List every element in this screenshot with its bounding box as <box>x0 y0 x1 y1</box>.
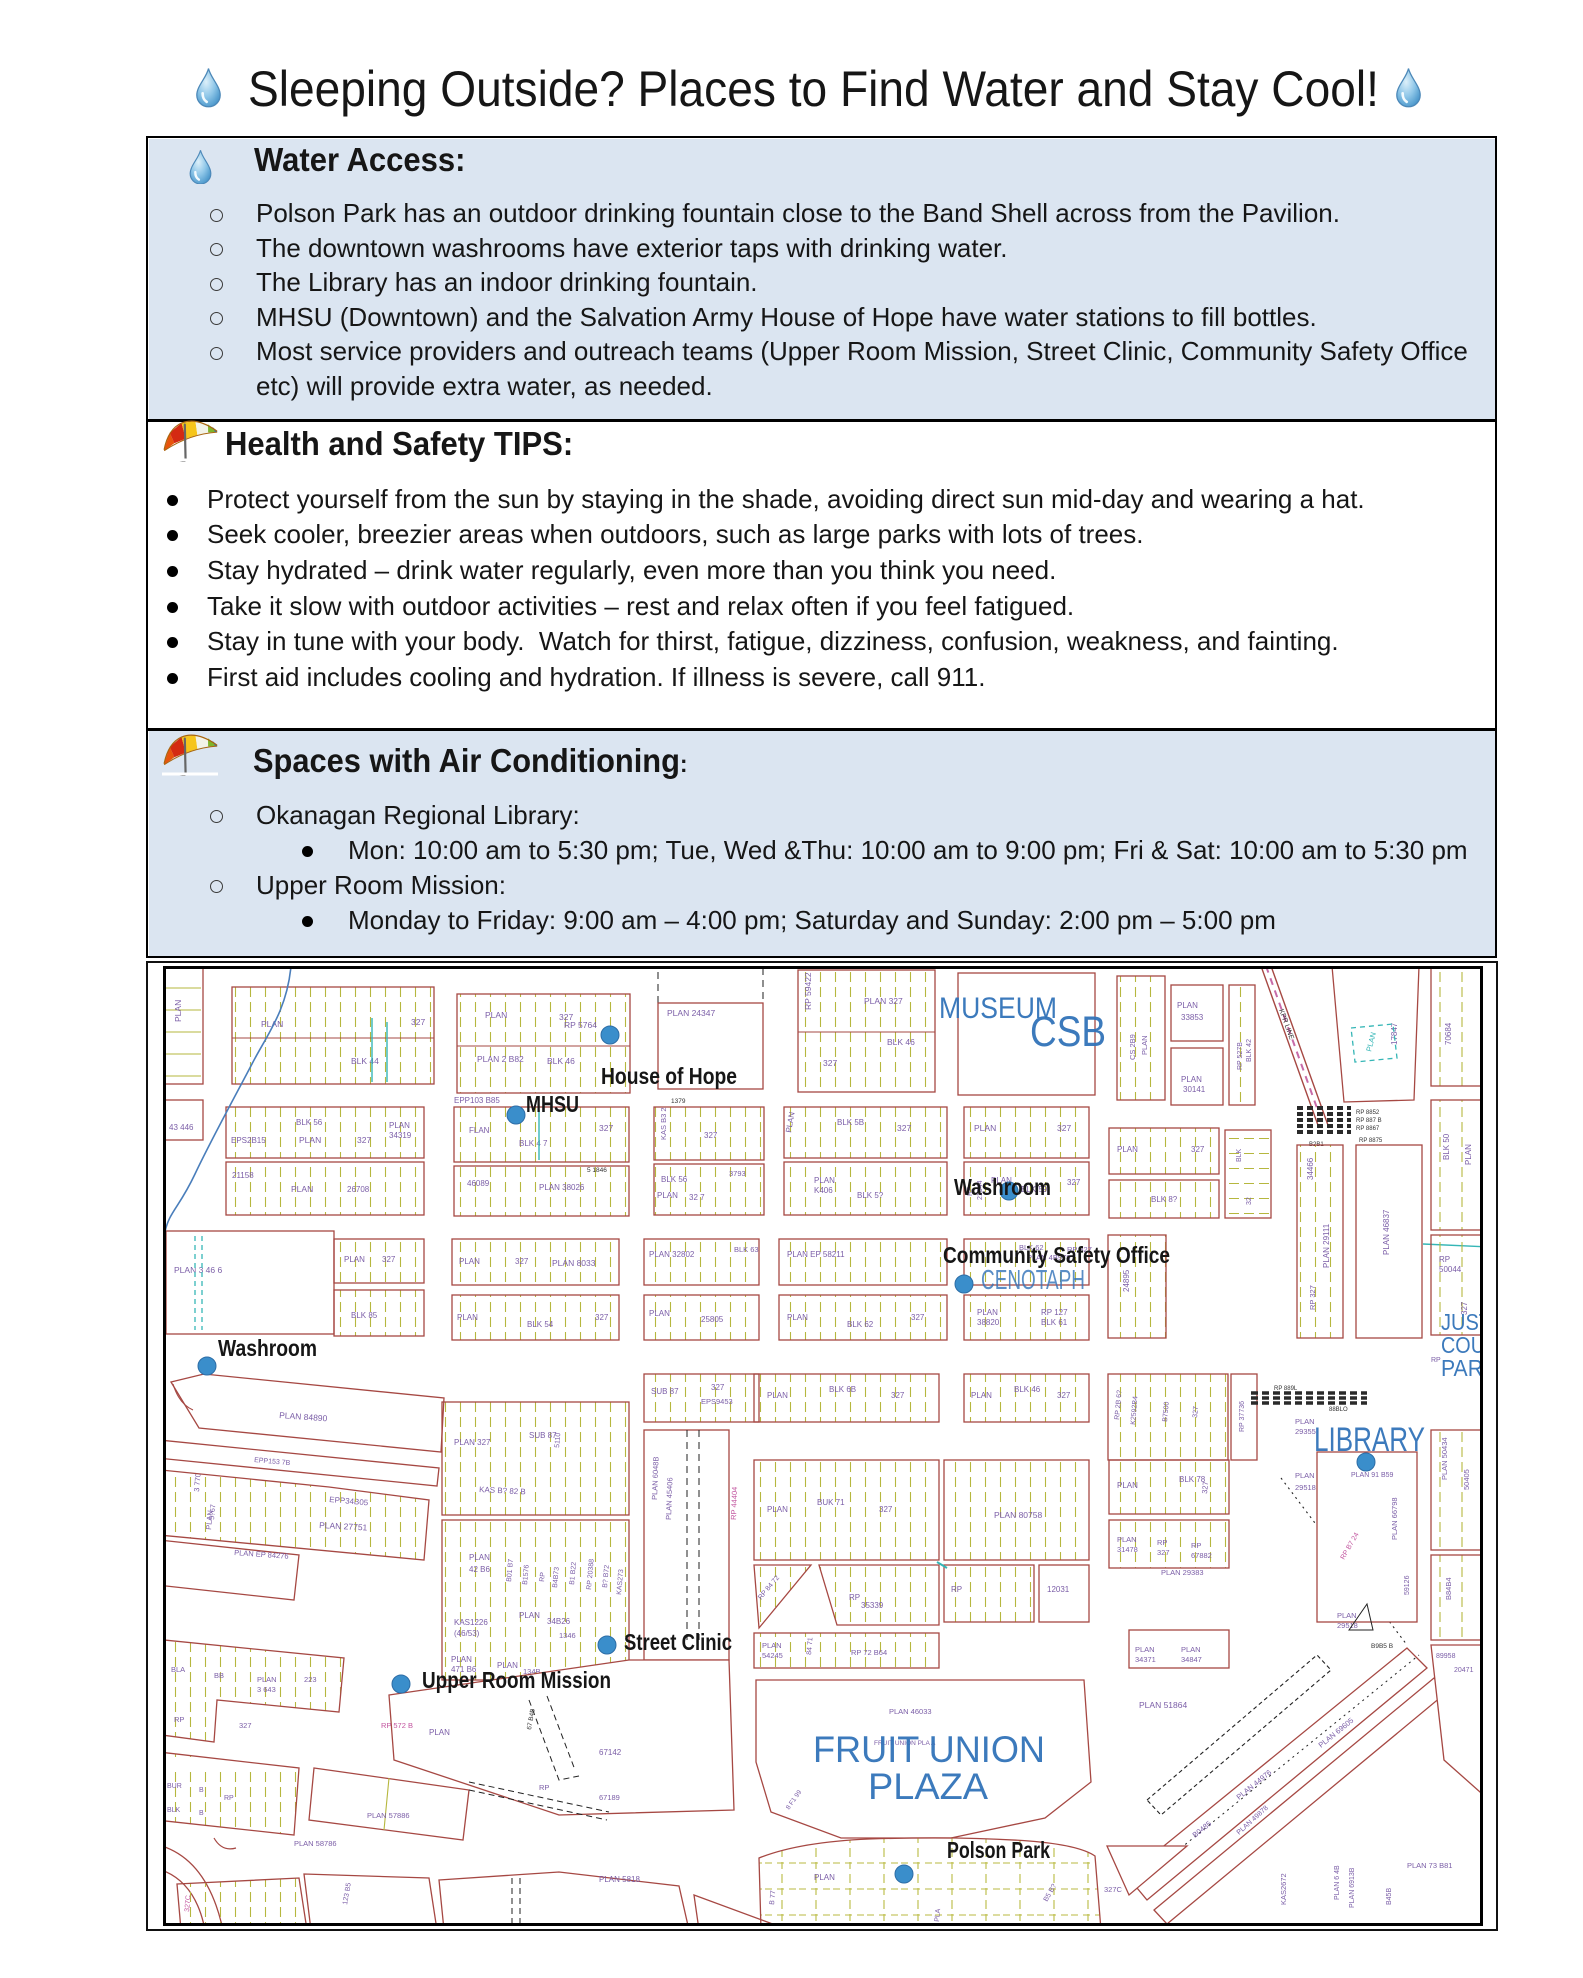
svg-text:Washroom: Washroom <box>954 1174 1051 1200</box>
svg-text:PLA: PLA <box>934 1908 942 1922</box>
svg-text:PLAN: PLAN <box>649 1309 670 1318</box>
svg-text:PLAN: PLAN <box>519 1611 540 1620</box>
svg-text:PLAN: PLAN <box>459 1257 480 1266</box>
svg-text:25805: 25805 <box>701 1315 724 1324</box>
svg-text:Washroom: Washroom <box>218 1335 317 1361</box>
svg-text:327: 327 <box>411 1017 425 1027</box>
svg-text:327: 327 <box>1057 1123 1071 1133</box>
svg-text:SUB 87: SUB 87 <box>529 1431 557 1440</box>
svg-text:PLAN 46033: PLAN 46033 <box>889 1707 932 1716</box>
svg-text:50044: 50044 <box>1439 1265 1462 1274</box>
svg-text:PLAN: PLAN <box>974 1123 996 1133</box>
svg-text:32: 32 <box>1246 1197 1253 1205</box>
svg-text:RP 889L: RP 889L <box>1274 1386 1298 1392</box>
svg-text:43 446: 43 446 <box>169 1123 194 1132</box>
svg-text:PLAN: PLAN <box>257 1675 277 1684</box>
svg-text:PLAN: PLAN <box>1337 1611 1357 1620</box>
svg-text:B45B: B45B <box>1386 1887 1393 1904</box>
svg-text:26708: 26708 <box>347 1185 370 1194</box>
svg-text:BLK 63: BLK 63 <box>734 1245 759 1254</box>
svg-text:RP 572 B: RP 572 B <box>381 1721 413 1730</box>
svg-text:PLAN: PLAN <box>1181 1645 1201 1654</box>
svg-text:PLAN 58786: PLAN 58786 <box>294 1839 337 1848</box>
svg-text:327: 327 <box>911 1313 925 1322</box>
svg-text:PLAN: PLAN <box>299 1135 321 1145</box>
svg-text:BLK 46: BLK 46 <box>1014 1385 1041 1394</box>
svg-text:BLK 56: BLK 56 <box>296 1118 323 1127</box>
svg-text:34371: 34371 <box>1135 1655 1156 1664</box>
svg-text:EPP103 B85: EPP103 B85 <box>454 1096 500 1105</box>
svg-text:BLK 4 7: BLK 4 7 <box>519 1139 548 1148</box>
svg-text:327C: 327C <box>1104 1885 1123 1894</box>
svg-text:SUB 87: SUB 87 <box>651 1387 679 1396</box>
svg-text:PLAN: PLAN <box>1295 1471 1315 1480</box>
svg-text:RP 8875: RP 8875 <box>1359 1138 1383 1144</box>
svg-text:BUK 71: BUK 71 <box>817 1498 845 1507</box>
svg-text:RP: RP <box>951 1585 962 1594</box>
svg-text:PLAN 91 B59: PLAN 91 B59 <box>1351 1472 1394 1479</box>
svg-text:PLAN: PLAN <box>1181 1075 1202 1084</box>
svg-text:327: 327 <box>711 1383 725 1392</box>
svg-text:BLK 46: BLK 46 <box>887 1037 915 1047</box>
svg-text:RP 8852: RP 8852 <box>1356 1110 1380 1116</box>
svg-text:PLAN: PLAN <box>1117 1481 1138 1490</box>
svg-text:33853: 33853 <box>1181 1013 1204 1022</box>
svg-text:PLAN 57886: PLAN 57886 <box>367 1811 410 1820</box>
svg-text:30141: 30141 <box>1183 1085 1206 1094</box>
svg-text:RP: RP <box>539 1571 547 1582</box>
svg-text:PLAZA: PLAZA <box>868 1766 988 1807</box>
svg-text:CENOTAPH: CENOTAPH <box>981 1264 1085 1295</box>
svg-text:RP: RP <box>174 1715 184 1724</box>
svg-text:67882: 67882 <box>1191 1551 1212 1560</box>
svg-text:BLK 8?: BLK 8? <box>1151 1195 1178 1204</box>
svg-text:29518: 29518 <box>1295 1483 1316 1492</box>
svg-text:46089: 46089 <box>467 1179 490 1188</box>
svg-text:42 B6: 42 B6 <box>469 1565 490 1574</box>
svg-text:PLAN 24347: PLAN 24347 <box>667 1008 715 1018</box>
svg-text:MHSU: MHSU <box>526 1091 579 1117</box>
svg-text:BLK 61: BLK 61 <box>1041 1318 1068 1327</box>
svg-text:K406: K406 <box>814 1186 833 1195</box>
svg-text:Street Clinic: Street Clinic <box>624 1629 732 1655</box>
svg-text:BB: BB <box>214 1671 224 1680</box>
svg-text:PLAN: PLAN <box>291 1184 313 1194</box>
svg-text:PLAN 29383: PLAN 29383 <box>1161 1568 1204 1577</box>
svg-text:BLK 85: BLK 85 <box>351 1311 378 1320</box>
svg-text:PAR: PAR <box>1441 1355 1483 1381</box>
svg-text:5 1846: 5 1846 <box>587 1167 607 1174</box>
svg-text:59126: 59126 <box>1404 1575 1411 1595</box>
svg-text:PLAN: PLAN <box>1140 1035 1149 1055</box>
svg-text:34B26: 34B26 <box>547 1617 571 1626</box>
svg-text:24895: 24895 <box>1122 1269 1131 1292</box>
svg-text:PLAN: PLAN <box>485 1010 507 1020</box>
svg-text:327: 327 <box>515 1257 529 1266</box>
svg-text:BLK 50: BLK 50 <box>1442 1133 1451 1160</box>
svg-text:RP 5764: RP 5764 <box>564 1020 597 1030</box>
svg-text:(46/53): (46/53) <box>454 1629 480 1638</box>
svg-text:RP 72 B64: RP 72 B64 <box>851 1648 887 1657</box>
svg-text:RP: RP <box>224 1795 234 1802</box>
svg-text:PLAN 3 46 6: PLAN 3 46 6 <box>174 1265 222 1275</box>
svg-text:89958: 89958 <box>1436 1653 1456 1660</box>
svg-text:327: 327 <box>599 1123 613 1133</box>
svg-text:BLK: BLK <box>167 1807 181 1814</box>
svg-text:RP 327: RP 327 <box>1308 1285 1317 1310</box>
svg-text:1346: 1346 <box>559 1631 576 1640</box>
svg-text:327: 327 <box>1200 1480 1210 1493</box>
svg-text:PLAN 327: PLAN 327 <box>864 996 903 1006</box>
svg-text:RP 8867: RP 8867 <box>1356 1126 1380 1132</box>
svg-text:PLAN: PLAN <box>1117 1535 1137 1544</box>
svg-text:327: 327 <box>239 1721 252 1730</box>
svg-text:Upper Room Mission: Upper Room Mission <box>422 1667 611 1693</box>
svg-text:PLAN 5818: PLAN 5818 <box>599 1875 640 1884</box>
svg-text:1379: 1379 <box>671 1098 686 1105</box>
svg-text:PLAN 66798: PLAN 66798 <box>1390 1497 1399 1540</box>
svg-text:327C: 327C <box>184 1894 192 1911</box>
svg-text:31478: 31478 <box>1117 1545 1138 1554</box>
svg-text:RP 527B: RP 527B <box>1237 1041 1244 1069</box>
svg-text:88BLO: 88BLO <box>1329 1407 1348 1413</box>
svg-text:PLAN 45406: PLAN 45406 <box>664 1477 674 1520</box>
svg-text:EPS9453: EPS9453 <box>701 1397 733 1406</box>
svg-text:RP 37736: RP 37736 <box>1239 1400 1246 1431</box>
svg-text:PLAN: PLAN <box>767 1505 788 1514</box>
svg-text:34319: 34319 <box>389 1131 412 1140</box>
svg-text:RP: RP <box>1431 1357 1441 1364</box>
svg-text:3 643: 3 643 <box>257 1685 276 1694</box>
svg-text:PLAN: PLAN <box>787 1313 808 1322</box>
svg-text:BLK 62: BLK 62 <box>847 1320 874 1329</box>
svg-text:B 77: B 77 <box>769 1890 777 1905</box>
svg-text:327: 327 <box>357 1135 371 1145</box>
svg-text:RP 59422: RP 59422 <box>803 972 813 1010</box>
svg-text:FLAN: FLAN <box>469 1126 490 1135</box>
svg-text:PLAN 8033: PLAN 8033 <box>552 1258 596 1268</box>
svg-text:B9B5 B: B9B5 B <box>1371 1643 1393 1650</box>
svg-text:223: 223 <box>304 1675 317 1684</box>
svg-text:PLAN EP 58211: PLAN EP 58211 <box>787 1250 845 1259</box>
svg-text:38820: 38820 <box>977 1318 1000 1327</box>
svg-text:B: B <box>199 1810 204 1817</box>
svg-text:EPS2B15: EPS2B15 <box>231 1136 266 1145</box>
svg-text:32 7: 32 7 <box>689 1193 705 1202</box>
svg-text:PLAN 327: PLAN 327 <box>454 1438 491 1447</box>
svg-text:327: 327 <box>1191 1145 1205 1154</box>
svg-text:RP: RP <box>849 1593 860 1602</box>
svg-text:RP: RP <box>1191 1541 1201 1550</box>
svg-text:PLAN 6913B: PLAN 6913B <box>1349 1867 1356 1908</box>
svg-text:PLAN: PLAN <box>767 1391 788 1400</box>
svg-text:327: 327 <box>1192 1405 1200 1417</box>
svg-text:327: 327 <box>1157 1548 1170 1557</box>
svg-text:KAS1226: KAS1226 <box>454 1618 488 1627</box>
svg-text:PLAN 73 B81: PLAN 73 B81 <box>1407 1861 1452 1870</box>
svg-text:327: 327 <box>897 1123 911 1133</box>
svg-text:PLAN 32802: PLAN 32802 <box>649 1250 695 1259</box>
svg-text:BLK 54: BLK 54 <box>527 1320 554 1329</box>
svg-text:29355: 29355 <box>1295 1427 1316 1436</box>
svg-text:BLK 5B: BLK 5B <box>837 1118 864 1127</box>
svg-text:PLAN: PLAN <box>1295 1417 1315 1426</box>
svg-text:BUR: BUR <box>167 1783 182 1790</box>
svg-text:BLK 5?: BLK 5? <box>857 1191 884 1200</box>
svg-text:327: 327 <box>879 1505 893 1514</box>
svg-text:PLAN: PLAN <box>657 1191 678 1200</box>
svg-text:BLK 56: BLK 56 <box>661 1175 688 1184</box>
svg-text:LIBRARY: LIBRARY <box>1314 1421 1425 1459</box>
svg-text:PLAN: PLAN <box>429 1728 450 1737</box>
svg-text:Community Safety Office: Community Safety Office <box>943 1242 1170 1268</box>
svg-text:RP: RP <box>1157 1538 1167 1547</box>
svg-text:RP 127: RP 127 <box>1041 1308 1068 1317</box>
svg-text:327: 327 <box>891 1391 905 1400</box>
svg-text:KAS B3 2: KAS B3 2 <box>659 1107 668 1140</box>
svg-text:PLAN: PLAN <box>457 1313 478 1322</box>
svg-text:CS 2B9: CS 2B9 <box>1128 1034 1137 1060</box>
svg-text:RP: RP <box>1439 1255 1450 1264</box>
svg-text:67142: 67142 <box>599 1748 622 1757</box>
svg-text:327: 327 <box>1057 1391 1071 1400</box>
svg-text:B84B4: B84B4 <box>1444 1577 1453 1600</box>
svg-text:PLAN: PLAN <box>762 1641 782 1650</box>
svg-text:35339: 35339 <box>861 1601 884 1610</box>
svg-text:RP: RP <box>539 1783 549 1792</box>
svg-text:RP 44404: RP 44404 <box>729 1486 739 1520</box>
svg-text:PLAN 46837: PLAN 46837 <box>1382 1209 1391 1255</box>
svg-text:PLAN 38026: PLAN 38026 <box>539 1183 585 1192</box>
svg-text:327: 327 <box>1067 1178 1081 1187</box>
svg-text:Polson Park: Polson Park <box>947 1837 1050 1863</box>
svg-text:PLAN 6048B: PLAN 6048B <box>650 1456 661 1500</box>
svg-text:BLK 6B: BLK 6B <box>829 1385 856 1394</box>
svg-text:PLAN 50434: PLAN 50434 <box>1440 1437 1449 1480</box>
svg-text:PLAN 2 B82: PLAN 2 B82 <box>477 1054 524 1064</box>
svg-text:21158: 21158 <box>232 1171 254 1180</box>
svg-text:PLAN: PLAN <box>977 1308 998 1317</box>
svg-text:PLAN: PLAN <box>1464 1143 1473 1164</box>
svg-text:PLAN 29111: PLAN 29111 <box>1322 1223 1331 1268</box>
svg-text:PLAN: PLAN <box>814 1873 835 1882</box>
svg-text:327: 327 <box>382 1255 396 1264</box>
svg-text:BLK 46: BLK 46 <box>547 1056 575 1066</box>
svg-text:PLAN: PLAN <box>451 1655 472 1664</box>
svg-text:34847: 34847 <box>1181 1655 1202 1664</box>
svg-text:70684: 70684 <box>1444 1022 1453 1045</box>
svg-text:PLAN: PLAN <box>173 999 183 1021</box>
svg-text:House of Hope: House of Hope <box>601 1063 737 1089</box>
svg-text:5110: 5110 <box>554 1432 562 1448</box>
svg-text:67189: 67189 <box>599 1793 620 1802</box>
svg-text:BLK: BLK <box>1236 1148 1243 1162</box>
svg-text:PLAN: PLAN <box>1177 1001 1198 1010</box>
svg-text:PLAN 51864: PLAN 51864 <box>1139 1700 1187 1710</box>
svg-text:PLAN: PLAN <box>344 1255 365 1264</box>
svg-text:327: 327 <box>823 1058 837 1068</box>
svg-text:CSB: CSB <box>1030 1008 1106 1056</box>
svg-text:PLAN: PLAN <box>389 1121 410 1130</box>
svg-text:PLAN: PLAN <box>971 1391 992 1400</box>
svg-text:B: B <box>199 1787 204 1794</box>
svg-text:BLK 44: BLK 44 <box>351 1056 379 1066</box>
svg-text:RP 887 B: RP 887 B <box>1356 1118 1382 1124</box>
svg-text:3793: 3793 <box>729 1169 746 1178</box>
svg-text:17847: 17847 <box>1390 1022 1399 1045</box>
svg-text:50405: 50405 <box>1462 1469 1471 1490</box>
svg-text:BLA: BLA <box>171 1665 185 1674</box>
svg-text:PLAN 6 4B: PLAN 6 4B <box>1334 1865 1341 1900</box>
svg-text:327: 327 <box>595 1313 609 1322</box>
svg-text:FRUIT UNION: FRUIT UNION <box>813 1729 1045 1770</box>
svg-text:34466: 34466 <box>1306 1157 1315 1180</box>
svg-text:KAS2672: KAS2672 <box>1279 1873 1288 1905</box>
svg-text:5?67: 5?67 <box>209 1503 217 1519</box>
svg-text:20471: 20471 <box>1454 1667 1474 1674</box>
svg-text:PLAN: PLAN <box>1117 1145 1138 1154</box>
svg-text:12031: 12031 <box>1047 1585 1070 1594</box>
svg-text:PLAN: PLAN <box>1135 1645 1155 1654</box>
svg-text:PLAN: PLAN <box>814 1176 835 1185</box>
svg-text:PLAN: PLAN <box>469 1553 490 1562</box>
svg-text:54245: 54245 <box>762 1651 783 1660</box>
svg-text:PLAN 80758: PLAN 80758 <box>994 1510 1042 1520</box>
svg-text:BLK 42: BLK 42 <box>1246 1038 1253 1061</box>
svg-text:327: 327 <box>704 1131 718 1140</box>
